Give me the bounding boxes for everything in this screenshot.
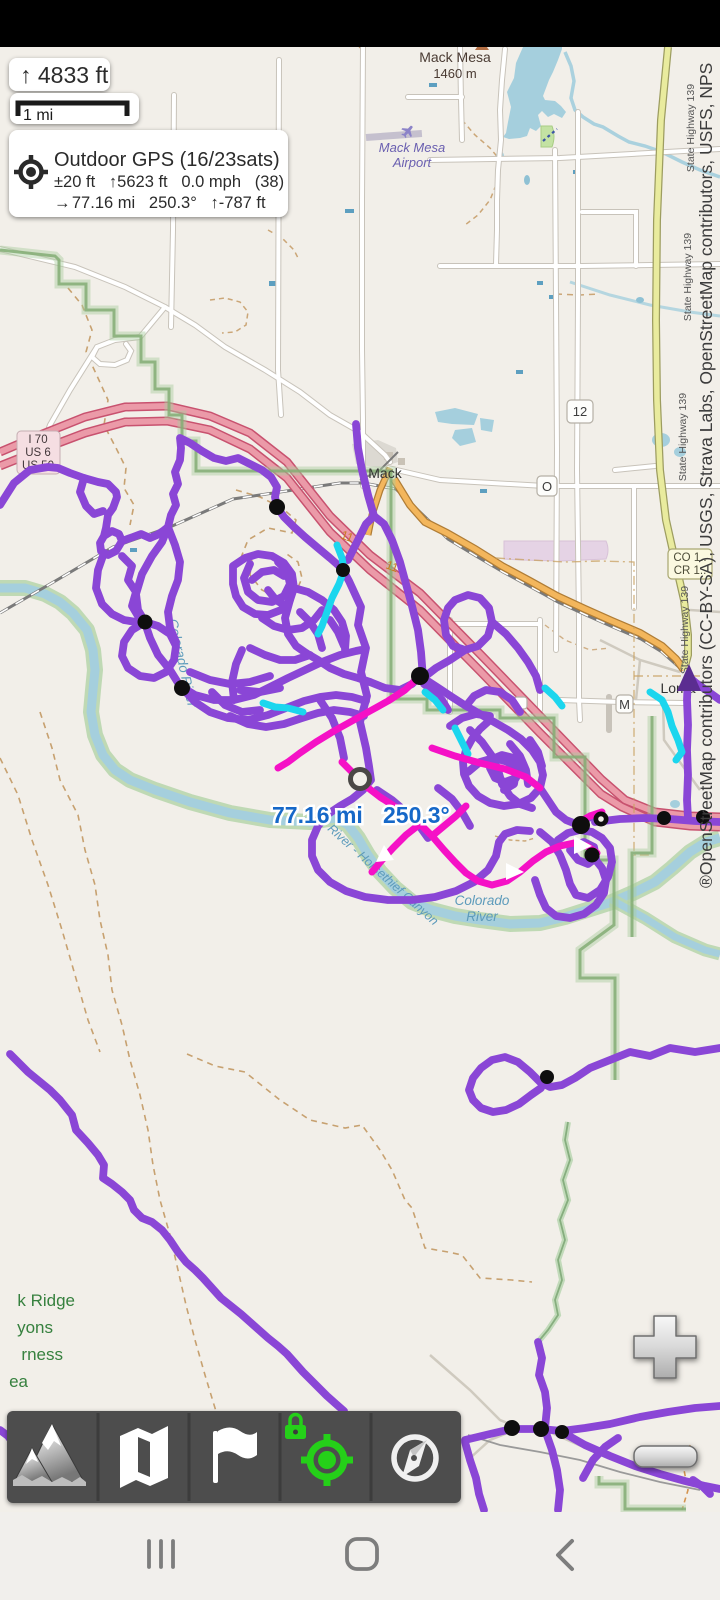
svg-text:250.3°: 250.3° bbox=[383, 802, 450, 828]
svg-text:Mack Mesa: Mack Mesa bbox=[379, 140, 445, 155]
svg-text:k Ridge: k Ridge bbox=[17, 1291, 75, 1310]
svg-text:1 mi: 1 mi bbox=[23, 107, 53, 124]
svg-text:M: M bbox=[619, 697, 630, 712]
svg-text:1460 m: 1460 m bbox=[433, 66, 476, 81]
svg-text:River: River bbox=[466, 909, 498, 924]
svg-text:Colorado: Colorado bbox=[455, 893, 510, 908]
svg-text:O: O bbox=[542, 479, 552, 494]
svg-text:State Highway 139: State Highway 139 bbox=[682, 233, 694, 321]
svg-text:®OpenStreetMap contributors (C: ®OpenStreetMap contributors (CC-BY-SA), … bbox=[696, 63, 716, 888]
svg-text:rness: rness bbox=[21, 1345, 63, 1364]
svg-text:I 70: I 70 bbox=[28, 434, 47, 446]
svg-text:Mack Mesa: Mack Mesa bbox=[419, 49, 491, 65]
svg-text:yons: yons bbox=[17, 1318, 53, 1337]
svg-text:Mack: Mack bbox=[368, 465, 402, 481]
svg-text:→ 77.16 mi 250.3° ↑-787 ft: → 77.16 mi 250.3° ↑-787 ft bbox=[54, 194, 266, 212]
svg-text:±20 ft ↑5623 ft 0.0 mph: ±20 ft ↑5623 ft 0.0 mph (38) bbox=[54, 173, 284, 191]
svg-text:US 6: US 6 bbox=[25, 447, 51, 459]
svg-text:ea: ea bbox=[9, 1372, 28, 1391]
svg-text:Outdoor GPS (16/23sats): Outdoor GPS (16/23sats) bbox=[54, 149, 280, 171]
svg-text:Airport: Airport bbox=[392, 155, 433, 170]
svg-text:77.16 mi: 77.16 mi bbox=[272, 802, 363, 828]
svg-text:State Highway 139: State Highway 139 bbox=[677, 393, 689, 481]
svg-text:12: 12 bbox=[573, 404, 587, 419]
svg-text:State Highway 139: State Highway 139 bbox=[679, 586, 691, 674]
svg-text:↑ 4833 ft: ↑ 4833 ft bbox=[20, 62, 109, 88]
